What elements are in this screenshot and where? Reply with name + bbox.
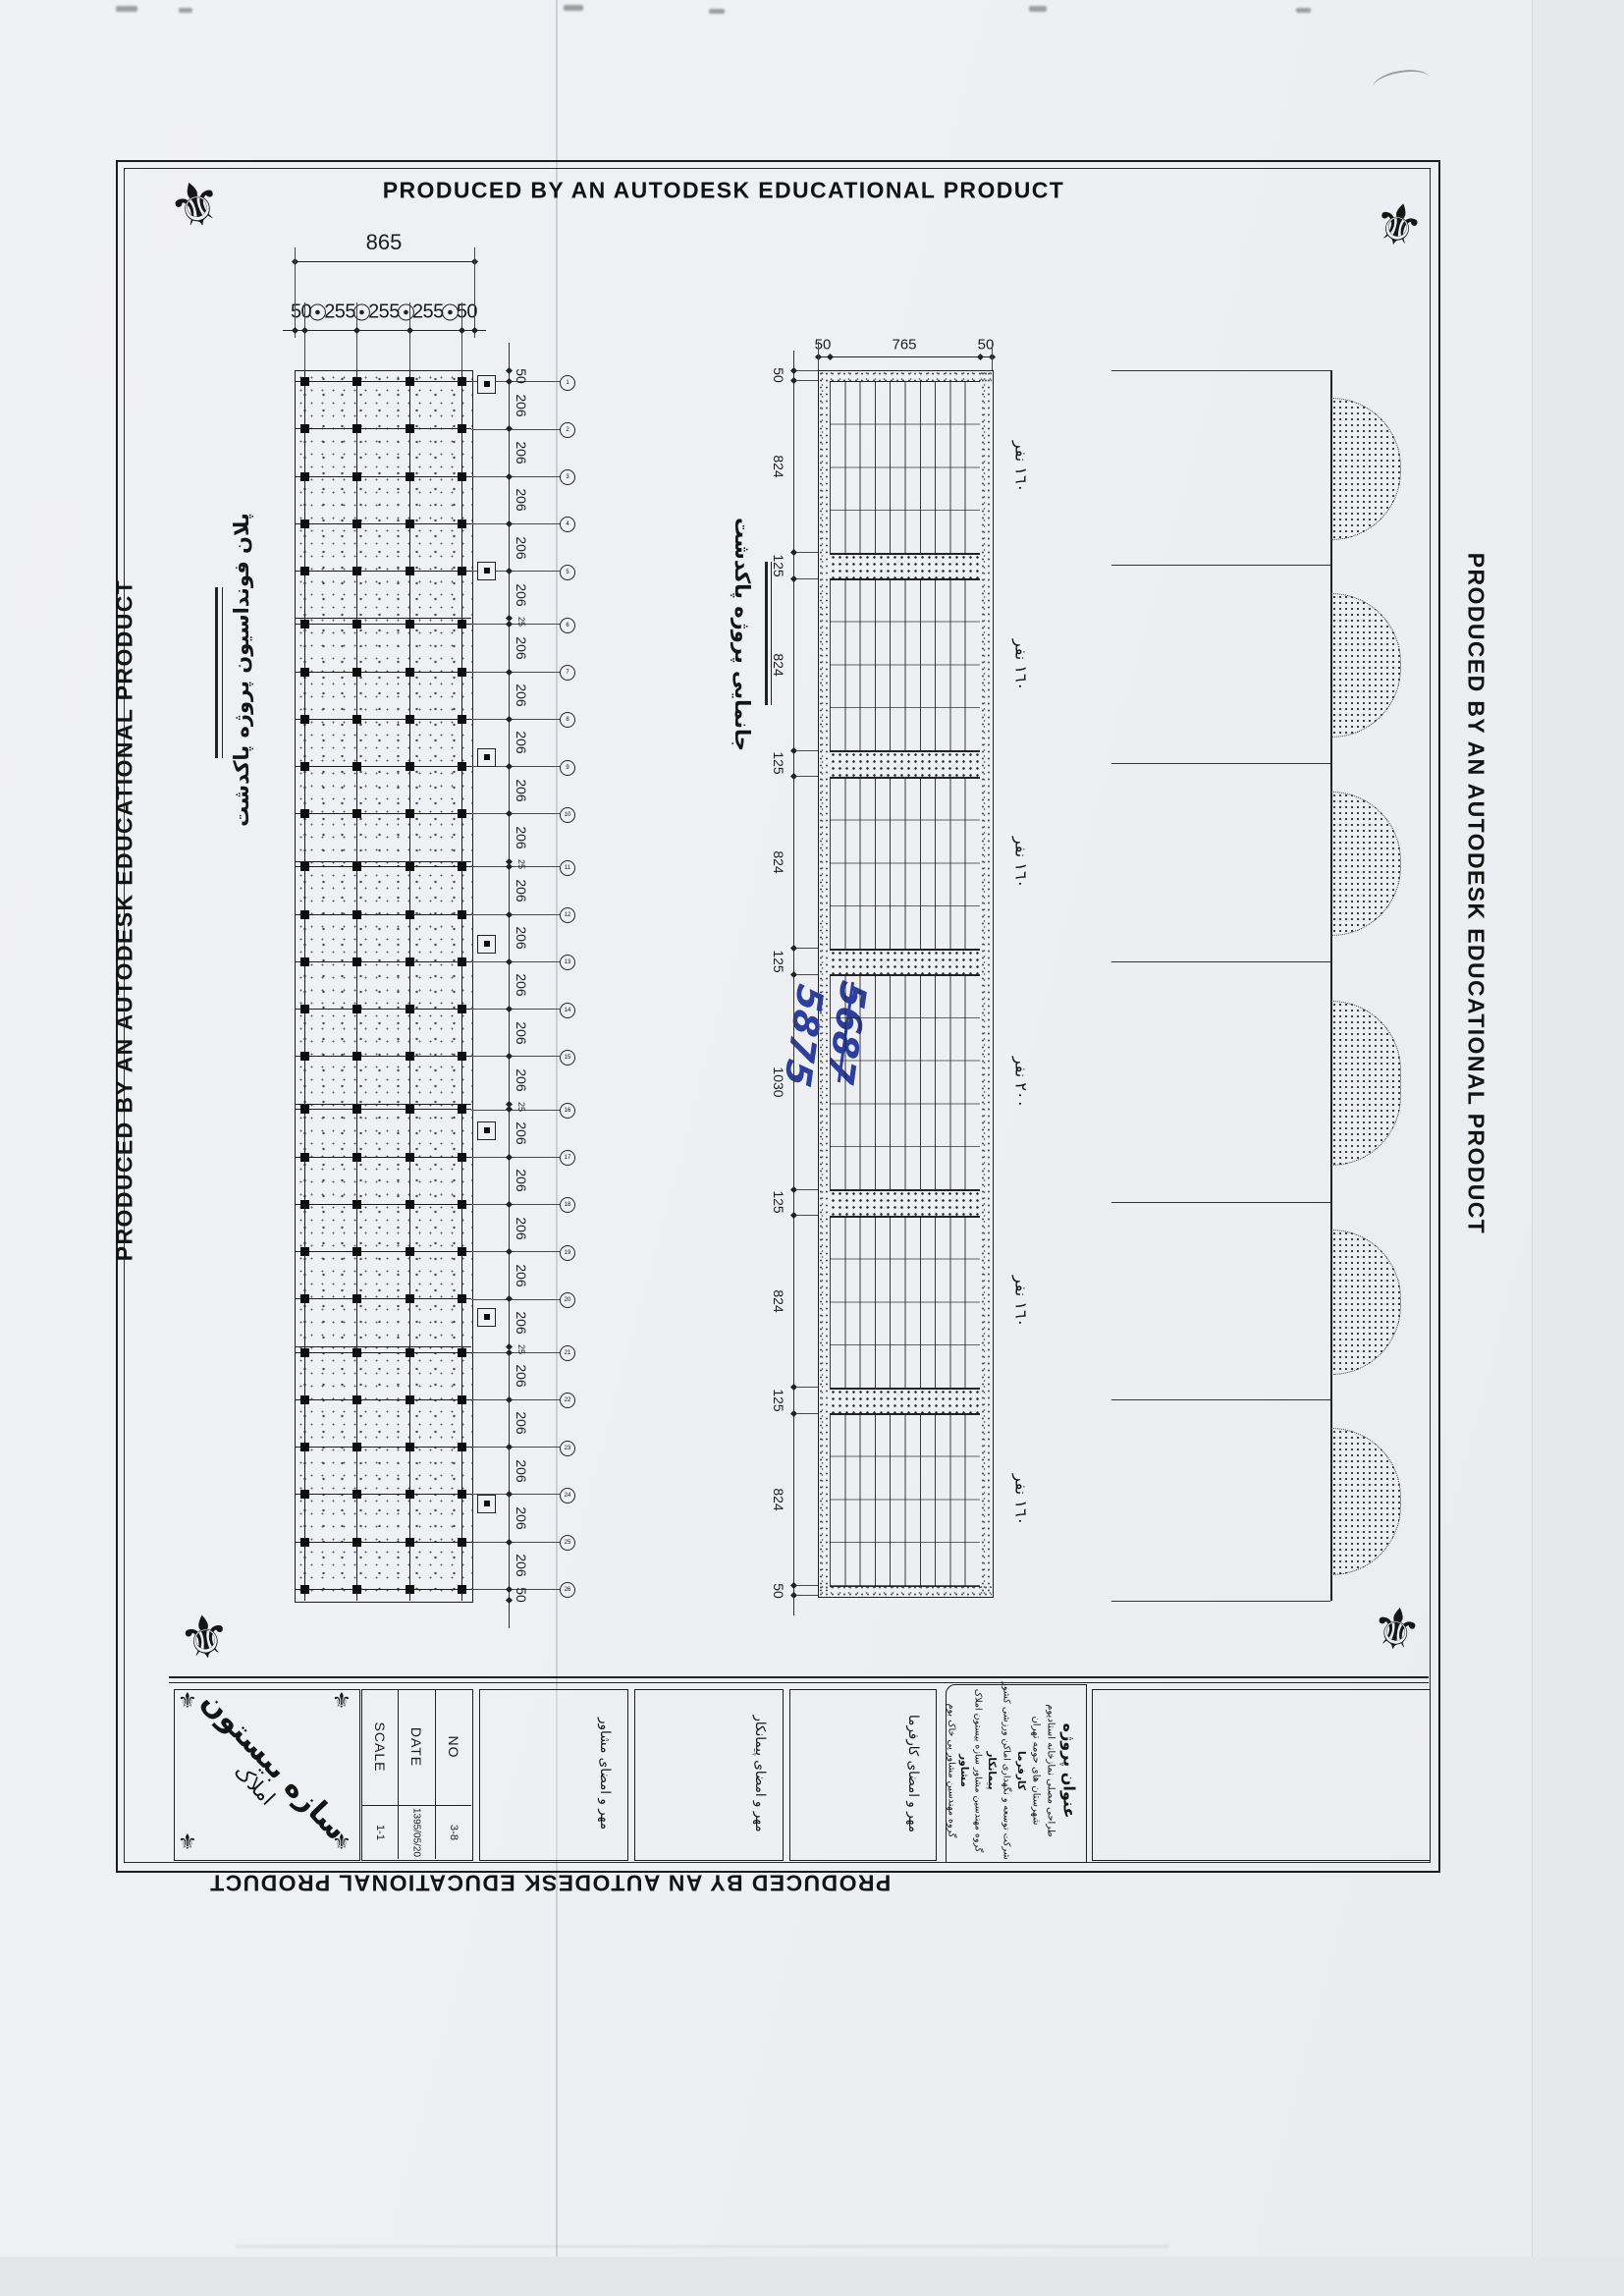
grid-line-horizontal (295, 1157, 471, 1158)
column-marker (300, 1200, 309, 1209)
leader-line (471, 1251, 560, 1252)
field-value-scale: 1-1 (374, 1825, 386, 1840)
extension-line (797, 974, 818, 975)
section-marker (477, 562, 496, 580)
dim-label: 1030 (771, 1066, 786, 1097)
column-marker (352, 1294, 361, 1303)
signature-label-consultant: مهر و امضای مشاور (597, 1718, 613, 1830)
grid-line-horizontal (295, 1251, 471, 1252)
autodesk-banner-top: PRODUCED BY AN AUTODESK EDUCATIONAL PROD… (383, 178, 1064, 204)
extension-line (797, 1215, 818, 1216)
titleblock-empty-box (1092, 1689, 1431, 1861)
grid-line-vertical (356, 370, 357, 1601)
grid-line-horizontal (295, 1109, 471, 1110)
extension-line (797, 750, 818, 751)
scan-smudge (1029, 6, 1047, 12)
column-marker (300, 1153, 309, 1162)
grid-bubble-icon: 10 (560, 807, 575, 823)
leader-line (471, 1056, 560, 1057)
grid-line-vertical (461, 370, 462, 1601)
dim-label: 824 (771, 851, 786, 874)
column-marker (300, 1294, 309, 1303)
column-marker (458, 519, 466, 528)
column-marker (406, 519, 414, 528)
dim-label: 206 (514, 1068, 529, 1091)
capacity-label: ١٦٠ نفر (1012, 837, 1031, 888)
field-value-date: 1395/05/20 (411, 1808, 422, 1857)
titleblock-top-rule (169, 1682, 1429, 1683)
titleblock-top-rule (169, 1676, 1429, 1678)
grid-bubble-icon: 12 (560, 907, 575, 923)
column-marker (406, 809, 414, 818)
grid-bubble-icon: 15 (560, 1050, 575, 1066)
column-marker (352, 519, 361, 528)
dim-total-width: 865 (366, 230, 403, 255)
column-marker (352, 957, 361, 966)
column-marker (458, 910, 466, 919)
dim-label: 125 (771, 752, 786, 775)
column-marker (300, 1490, 309, 1499)
dim-label: 25 (516, 1102, 526, 1112)
column-marker (352, 809, 361, 818)
dim-label: 206 (514, 1412, 529, 1435)
bay-divider-line (1111, 1202, 1330, 1203)
column-marker (458, 762, 466, 771)
grid-bubble-icon: 9 (560, 760, 575, 776)
fleur-de-lis-icon: ⚜ (175, 1606, 236, 1671)
extension-line (797, 552, 818, 553)
dim-segment: 255 (324, 301, 355, 324)
column-marker (406, 377, 414, 386)
column-marker (406, 862, 414, 871)
dim-label: 206 (514, 1170, 529, 1192)
leader-line (471, 1542, 560, 1543)
column-marker (406, 1395, 414, 1404)
project-line: گروه مهندسین مشاور سازه بیستون املاک (973, 1689, 984, 1853)
extension-line (295, 247, 296, 338)
column-marker (406, 957, 414, 966)
column-marker (352, 715, 361, 724)
leader-line (471, 813, 560, 814)
grid-line-horizontal (295, 961, 471, 962)
column-marker (300, 1348, 309, 1357)
table-divider (435, 1689, 436, 1859)
section-marker (477, 1121, 496, 1140)
extension-line (797, 1189, 818, 1190)
extension-line (461, 302, 462, 370)
dim-label: 125 (771, 1191, 786, 1214)
column-marker (458, 1443, 466, 1451)
grid-line-horizontal (295, 1352, 471, 1353)
grid-line-vertical (304, 370, 305, 1601)
leader-line (471, 914, 560, 915)
column-marker (352, 424, 361, 433)
column-marker (458, 567, 466, 575)
leader-line (471, 1447, 560, 1448)
grid-line-horizontal (295, 813, 471, 814)
section-marker (477, 375, 496, 394)
dim-label: 206 (514, 927, 529, 950)
column-marker (352, 1443, 361, 1451)
title-underline (215, 587, 218, 758)
dim-label: 50 (514, 1587, 529, 1603)
aisle-band (830, 750, 980, 779)
seating-block (830, 1216, 980, 1390)
column-marker (352, 1005, 361, 1013)
title-underline (771, 562, 772, 705)
column-marker (458, 1105, 466, 1114)
autodesk-banner-bottom: PRODUCED BY AN AUTODESK EDUCATIONAL PROD… (209, 1870, 891, 1896)
grid-bubble-icon: 19 (560, 1245, 575, 1261)
column-marker (406, 1348, 414, 1357)
project-line: شرکت توسعه و نگهداری اماکن ورزشی کشور (1001, 1681, 1012, 1859)
dim-label: 206 (514, 1311, 529, 1334)
column-marker (458, 1200, 466, 1209)
column-marker (406, 472, 414, 481)
grid-bubble-icon: 20 (560, 1292, 575, 1308)
column-marker (352, 472, 361, 481)
grid-bubble-icon: 21 (560, 1345, 575, 1361)
field-label-date: DATE (408, 1727, 424, 1767)
title-underline (765, 562, 768, 705)
field-value-no: 3-8 (448, 1825, 460, 1840)
column-marker (458, 424, 466, 433)
column-marker (458, 1247, 466, 1256)
dim-label: 824 (771, 653, 786, 676)
column-marker (406, 620, 414, 629)
column-marker (406, 1052, 414, 1061)
column-marker (352, 1052, 361, 1061)
grid-line-horizontal (295, 719, 471, 720)
column-marker (406, 1200, 414, 1209)
extension-line (797, 1413, 818, 1414)
dim-label: 824 (771, 1289, 786, 1312)
column-marker (406, 567, 414, 575)
extension-line (304, 302, 305, 370)
grid-line-horizontal (295, 428, 471, 429)
grid-line-vertical (409, 370, 410, 1601)
column-marker (458, 1348, 466, 1357)
grid-bubble-icon: 6 (560, 618, 575, 633)
project-line: مشاور (958, 1754, 970, 1787)
dim-label: 206 (514, 779, 529, 801)
leader-line (471, 1204, 560, 1205)
column-marker (458, 1490, 466, 1499)
grid-line-horizontal (295, 381, 471, 382)
column-marker (458, 668, 466, 677)
grid-bubble-icon: 11 (560, 860, 575, 876)
grid-bubble-icon: 25 (560, 1535, 575, 1551)
column-marker (406, 1538, 414, 1547)
autodesk-banner-left: PRODUCED BY AN AUTODESK EDUCATIONAL PROD… (112, 579, 138, 1261)
column-marker (406, 1490, 414, 1499)
column-marker (406, 1294, 414, 1303)
scan-smudge (116, 6, 137, 12)
column-marker (352, 1105, 361, 1114)
scan-bottom-ghost (236, 2245, 1168, 2248)
project-line: پیمانکار (986, 1751, 998, 1789)
aisle-band (830, 553, 980, 581)
extension-line (797, 380, 818, 381)
dim-segment: 255 (368, 301, 400, 324)
leader-line (471, 961, 560, 962)
scan-smudge (1296, 8, 1311, 13)
site-layout-title: جانمایی پروژه پاکدشت (731, 518, 754, 751)
leader-line (471, 866, 560, 867)
column-marker (406, 424, 414, 433)
dim-label: 206 (514, 394, 529, 416)
grid-line-horizontal (295, 1056, 471, 1057)
grid-line-horizontal (295, 1589, 471, 1590)
wall-right (980, 370, 992, 1596)
column-marker (352, 620, 361, 629)
extension-line (797, 1387, 818, 1388)
column-marker (300, 1395, 309, 1404)
grid-bubble-icon: 23 (560, 1441, 575, 1456)
bay-divider-line (1111, 763, 1330, 764)
aisle-band (830, 1388, 980, 1416)
column-marker (300, 1105, 309, 1114)
column-marker (406, 715, 414, 724)
dim-label: 50 (771, 1583, 786, 1599)
dim-label: 206 (514, 1264, 529, 1286)
column-marker (352, 1200, 361, 1209)
bay-divider-line (1111, 1601, 1330, 1602)
seating-block (830, 381, 980, 555)
section-marker (477, 935, 496, 954)
dim-label: 824 (771, 1488, 786, 1510)
column-marker (406, 1153, 414, 1162)
leader-line (471, 1157, 560, 1158)
dim-label: 206 (514, 636, 529, 659)
column-marker (300, 519, 309, 528)
grid-bubble-icon: 24 (560, 1488, 575, 1503)
seating-block (830, 1413, 980, 1587)
column-marker (406, 1247, 414, 1256)
foundation-plan-title: پلان فونداسیون پروژه پاکدشت (230, 513, 253, 827)
scan-smudge (709, 9, 725, 14)
autodesk-banner-right: PRODUCED BY AN AUTODESK EDUCATIONAL PROD… (1463, 553, 1489, 1234)
project-line: شهرستان های حومه تهران (1031, 1716, 1042, 1825)
leader-line (471, 1352, 560, 1353)
column-marker (352, 1585, 361, 1594)
column-marker (300, 1247, 309, 1256)
section-marker (477, 1308, 496, 1327)
grid-line-horizontal (295, 866, 471, 867)
project-heading: عنوان پروژه (1060, 1723, 1079, 1819)
grid-bubble-icon: 1 (560, 375, 575, 391)
grid-line-horizontal (295, 914, 471, 915)
grid-bubble-icon: 2 (560, 422, 575, 438)
scanned-drawing-sheet: ⚜ ⚜ ⚜ ⚜ PRODUCED BY AN AUTODESK EDUCATIO… (0, 0, 1624, 2296)
capacity-label: ١٦٠ نفر (1012, 1276, 1031, 1327)
leader-line (471, 719, 560, 720)
project-line: کارفرما (1015, 1751, 1027, 1790)
dim-line (295, 261, 474, 262)
dim-label: 206 (514, 1459, 529, 1482)
column-marker (300, 809, 309, 818)
leader-line (471, 1399, 560, 1400)
section-marker (477, 748, 496, 767)
column-marker (458, 377, 466, 386)
column-marker (300, 620, 309, 629)
arch-wall-line (1330, 370, 1332, 1601)
bay-divider-line (1111, 565, 1330, 566)
column-marker (352, 1153, 361, 1162)
extension-line (797, 776, 818, 777)
dim-label: 206 (514, 489, 529, 512)
extension-line (474, 247, 475, 338)
column-marker (406, 1005, 414, 1013)
column-marker (300, 1052, 309, 1061)
dim-label: 206 (514, 441, 529, 464)
dim-label: 25 (516, 1344, 526, 1354)
column-marker (300, 862, 309, 871)
extension-line (797, 1595, 818, 1596)
aisle-band (830, 1189, 980, 1218)
grid-line-horizontal (295, 1447, 471, 1448)
grid-line-horizontal (295, 1009, 471, 1010)
dim-chain-line (509, 343, 510, 1628)
grid-bubble-icon: 14 (560, 1003, 575, 1018)
grid-line-horizontal (295, 861, 471, 862)
foundation-plan-body (295, 370, 473, 1603)
grid-line-horizontal (295, 1399, 471, 1400)
seating-block (830, 777, 980, 951)
grid-line-horizontal (295, 1494, 471, 1495)
column-marker (458, 1005, 466, 1013)
dim-label: 206 (514, 826, 529, 848)
column-marker (300, 1585, 309, 1594)
grid-line-horizontal (295, 1204, 471, 1205)
dim-label: 206 (514, 1217, 529, 1239)
capacity-label: ٢٠٠ نفر (1012, 1057, 1031, 1108)
leader-line (471, 1110, 560, 1111)
grid-line-horizontal (295, 1104, 471, 1105)
column-marker (352, 377, 361, 386)
dim-label: 206 (514, 974, 529, 997)
leader-line (471, 429, 560, 430)
column-marker (352, 567, 361, 575)
table-divider (361, 1805, 471, 1806)
column-marker (352, 762, 361, 771)
extension-line (992, 342, 993, 370)
project-line: طراحی مصلی نمازخانه استادیوم (1046, 1704, 1056, 1837)
column-marker (300, 957, 309, 966)
column-marker (352, 910, 361, 919)
dim-label: 206 (514, 536, 529, 559)
column-marker (300, 668, 309, 677)
column-marker (406, 1443, 414, 1451)
bay-divider-line (1111, 1399, 1330, 1400)
column-marker (458, 472, 466, 481)
bay-divider-line (1111, 961, 1330, 962)
dim-label: 50 (514, 368, 529, 384)
title-underline (222, 587, 223, 758)
column-marker (406, 668, 414, 677)
column-marker (458, 715, 466, 724)
dim-line (283, 330, 486, 331)
column-marker (352, 1247, 361, 1256)
column-marker (458, 957, 466, 966)
extension-line (797, 948, 818, 949)
pen-squiggle (1371, 66, 1431, 99)
dim-label: 206 (514, 1554, 529, 1576)
dim-chain-line (793, 351, 794, 1615)
column-marker (300, 762, 309, 771)
column-marker (352, 1348, 361, 1357)
field-label-scale: SCALE (372, 1722, 388, 1773)
signature-label-employer: مهر و امضای کارفرما (905, 1715, 921, 1832)
column-marker (300, 472, 309, 481)
grid-line-horizontal (295, 571, 471, 572)
grid-bubble-icon: 7 (560, 665, 575, 681)
grid-line-horizontal (295, 523, 471, 524)
dim-label: 206 (514, 1506, 529, 1529)
extension-line (356, 302, 357, 370)
capacity-label: ١٦٠ نفر (1012, 441, 1031, 492)
column-marker (406, 1105, 414, 1114)
column-marker (406, 762, 414, 771)
seating-block (830, 578, 980, 752)
dim-chain-row: 5025525525550 (291, 301, 477, 324)
leader-line (471, 1299, 560, 1300)
dim-label: 50 (771, 368, 786, 384)
dim-label: 206 (514, 732, 529, 754)
aisle-band (830, 949, 980, 977)
column-marker (458, 1538, 466, 1547)
leader-line (471, 672, 560, 673)
capacity-label: ١٦٠ نفر (1012, 639, 1031, 690)
column-marker (458, 1395, 466, 1404)
grid-line-horizontal (295, 618, 471, 619)
column-marker (458, 862, 466, 871)
capacity-label: ١٦٠ نفر (1012, 1474, 1031, 1525)
column-marker (300, 377, 309, 386)
fleur-de-lis-icon: ⚜ (178, 1832, 197, 1854)
signature-label-contractor: مهر و امضای پیمانکار (752, 1715, 768, 1831)
bay-divider-line (1111, 370, 1330, 371)
leader-line (471, 1009, 560, 1010)
column-marker (352, 1395, 361, 1404)
seating-block (830, 974, 980, 1191)
scan-edge-strip (1532, 0, 1624, 2296)
column-marker (352, 668, 361, 677)
column-marker (352, 1490, 361, 1499)
section-marker (477, 1495, 496, 1513)
grid-line-horizontal (295, 624, 471, 625)
leader-line (471, 624, 560, 625)
column-marker (300, 567, 309, 575)
dim-label: 206 (514, 1364, 529, 1387)
extension-line (797, 578, 818, 579)
column-marker (300, 910, 309, 919)
dim-label: 125 (771, 554, 786, 576)
dim-label: 206 (514, 1121, 529, 1144)
dim-label: 125 (771, 950, 786, 972)
column-marker (458, 1585, 466, 1594)
scan-smudge (179, 8, 192, 13)
extension-line (797, 370, 818, 371)
dim-segment: 255 (412, 301, 444, 324)
extension-line (409, 302, 410, 370)
column-marker (352, 1538, 361, 1547)
dim-line (818, 356, 992, 357)
column-marker (406, 1585, 414, 1594)
column-marker (458, 1052, 466, 1061)
column-marker (458, 1153, 466, 1162)
project-line: گروه مهندسین مشاور پی خاک بوم (947, 1704, 957, 1838)
